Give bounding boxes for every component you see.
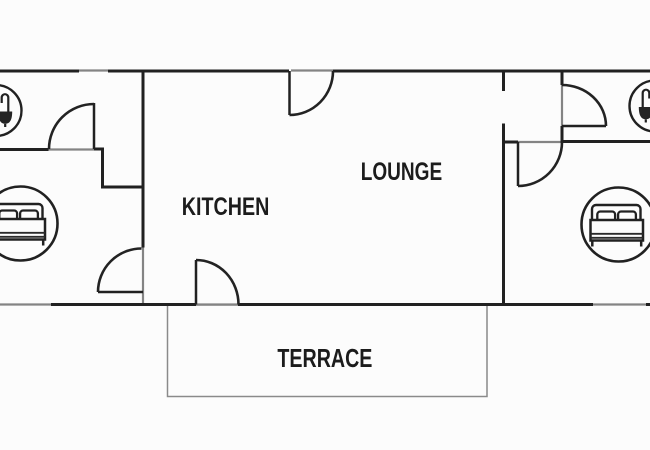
svg-text:KITCHEN: KITCHEN bbox=[182, 193, 269, 221]
svg-text:TERRACE: TERRACE bbox=[277, 345, 372, 373]
svg-text:LOUNGE: LOUNGE bbox=[361, 159, 443, 186]
